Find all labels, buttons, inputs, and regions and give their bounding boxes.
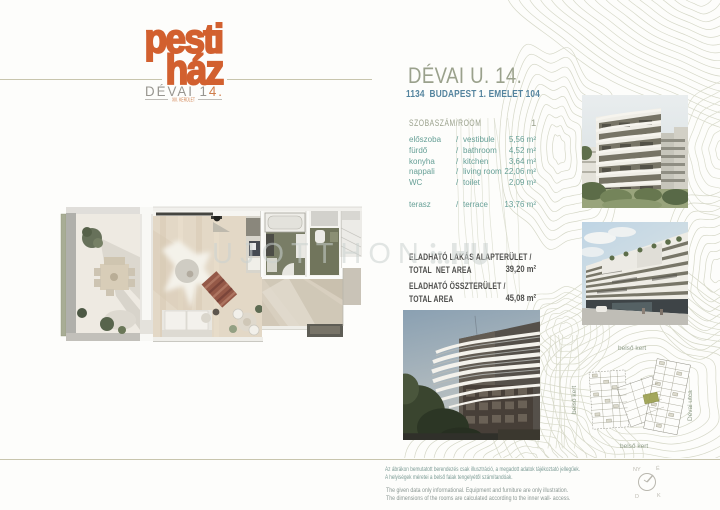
svg-text:XIII. KERÜLET: XIII. KERÜLET xyxy=(172,97,195,104)
svg-text:belső kert: belső kert xyxy=(620,443,648,450)
svg-text:belső kert: belső kert xyxy=(618,345,646,352)
svg-text:belső kert: belső kert xyxy=(571,386,578,414)
svg-text:D: D xyxy=(635,494,639,500)
svg-text:K: K xyxy=(657,493,661,499)
svg-text:NY: NY xyxy=(633,467,641,473)
svg-text:É: É xyxy=(656,465,660,472)
svg-text:Dévai utca: Dévai utca xyxy=(687,390,694,421)
